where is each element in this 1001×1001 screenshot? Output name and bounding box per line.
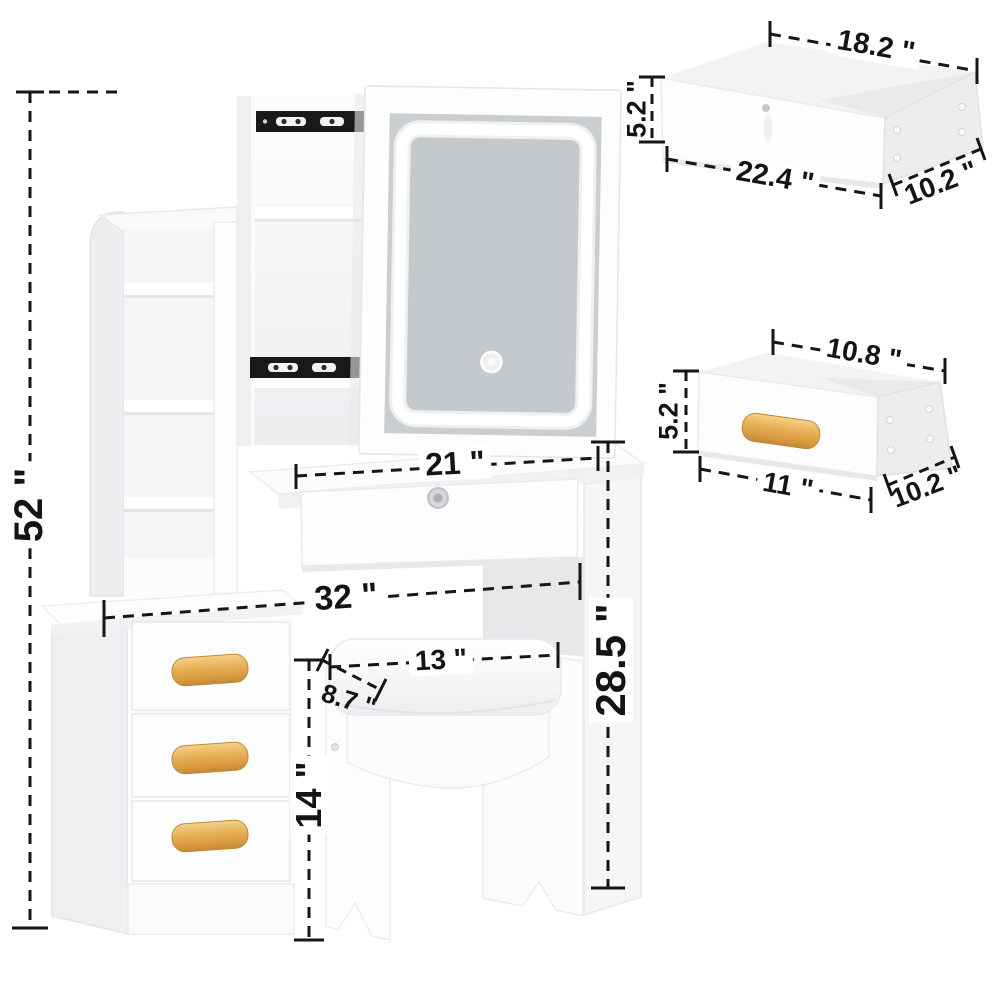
sliding-mirror (349, 86, 621, 459)
wood-handle-icon (171, 819, 249, 852)
dim-label-desktop-width: 21 " (418, 444, 491, 482)
dim-label-desk-height: 28.5 " (589, 597, 633, 722)
lock-knob-center (434, 494, 443, 503)
small-drawer-detail (698, 353, 952, 481)
tower-shelf-shadow (124, 509, 214, 512)
large-drawer-hole (762, 104, 770, 112)
screw-icon (887, 417, 894, 424)
screw-icon (926, 406, 933, 413)
screw-icon (894, 155, 901, 162)
screw-icon (894, 127, 901, 134)
dim-label-large-drawer-height: 5.2 " (624, 80, 651, 138)
side-shelf-tower (90, 207, 237, 596)
cabinet-shelf-shadow (255, 219, 368, 222)
drawer-cabinet (42, 590, 302, 936)
tower-shelf (124, 497, 214, 509)
screw-icon (888, 447, 895, 454)
cabinet-side-face (52, 618, 128, 934)
screw-icon (959, 104, 966, 111)
product-dimension-diagram: 52 " 14 " 28.5 " 21 " 32 " 13 " 8.7 " 18… (0, 0, 1001, 1001)
dim-label-overall-width: 32 " (307, 576, 385, 617)
tower-side-panel (90, 212, 124, 596)
screw-icon (927, 436, 934, 443)
large-drawer-front-streak (764, 114, 772, 142)
dim-label-small-drawer-height: 5.2 " (656, 382, 683, 440)
tower-right-wall (214, 222, 237, 596)
furniture-illustration (0, 0, 1001, 1001)
dim-label-overall-height: 52 " (8, 462, 50, 549)
tower-shelf-shadow (124, 295, 214, 298)
tower-shelf (124, 283, 214, 295)
cabinet-middle-shelf (255, 207, 368, 219)
dim-label-cabinet-height: 14 " (290, 755, 328, 834)
screw-icon (332, 744, 339, 751)
dim-label-stool-width: 13 " (408, 643, 474, 676)
wood-handle-icon (171, 741, 249, 774)
tower-shelf (124, 400, 214, 412)
screw-icon (959, 129, 966, 136)
wood-handle-icon (171, 653, 249, 686)
tower-shelf-shadow (124, 412, 214, 415)
cabinet-base (128, 884, 294, 934)
slide-rail-top-icon (256, 111, 368, 132)
